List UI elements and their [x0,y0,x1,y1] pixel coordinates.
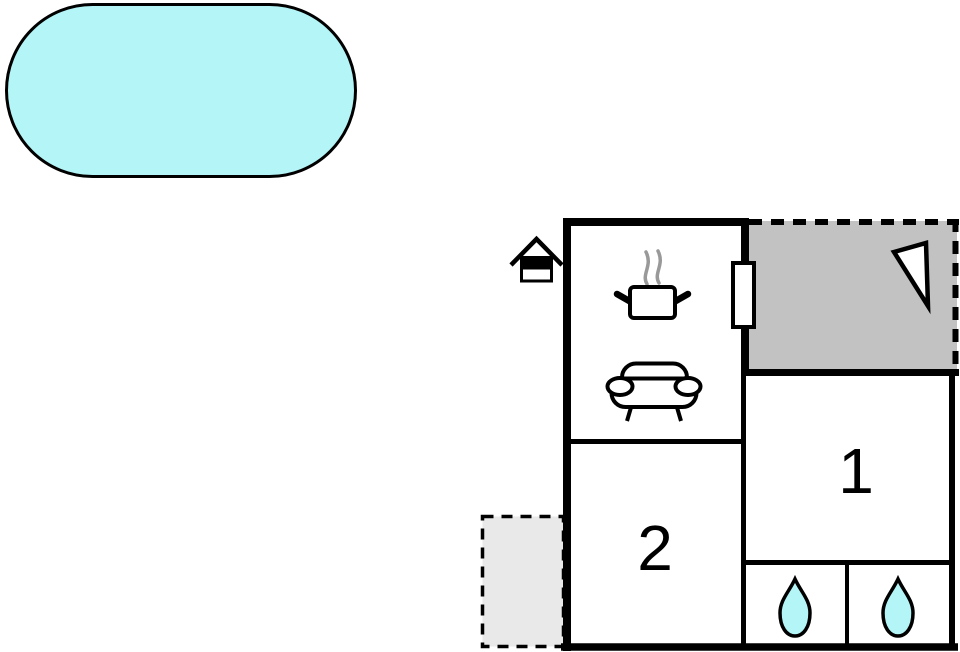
house-entrance-icon [511,239,562,281]
sofa-icon [608,364,701,422]
swimming-pool-icon [7,5,356,177]
room-1-label: 1 [838,435,874,507]
steam-line-right [657,251,660,283]
floorplan-canvas: 1 2 [0,0,960,652]
steam-line-left [645,252,648,284]
annex-area [483,517,564,647]
door-opening [733,263,754,327]
room-2-label: 2 [637,512,673,584]
water-drop-icon [883,579,913,636]
floorplan-drawing: 1 2 [0,0,960,652]
steaming-pot-icon [617,251,688,318]
water-drop-icon [780,579,810,636]
